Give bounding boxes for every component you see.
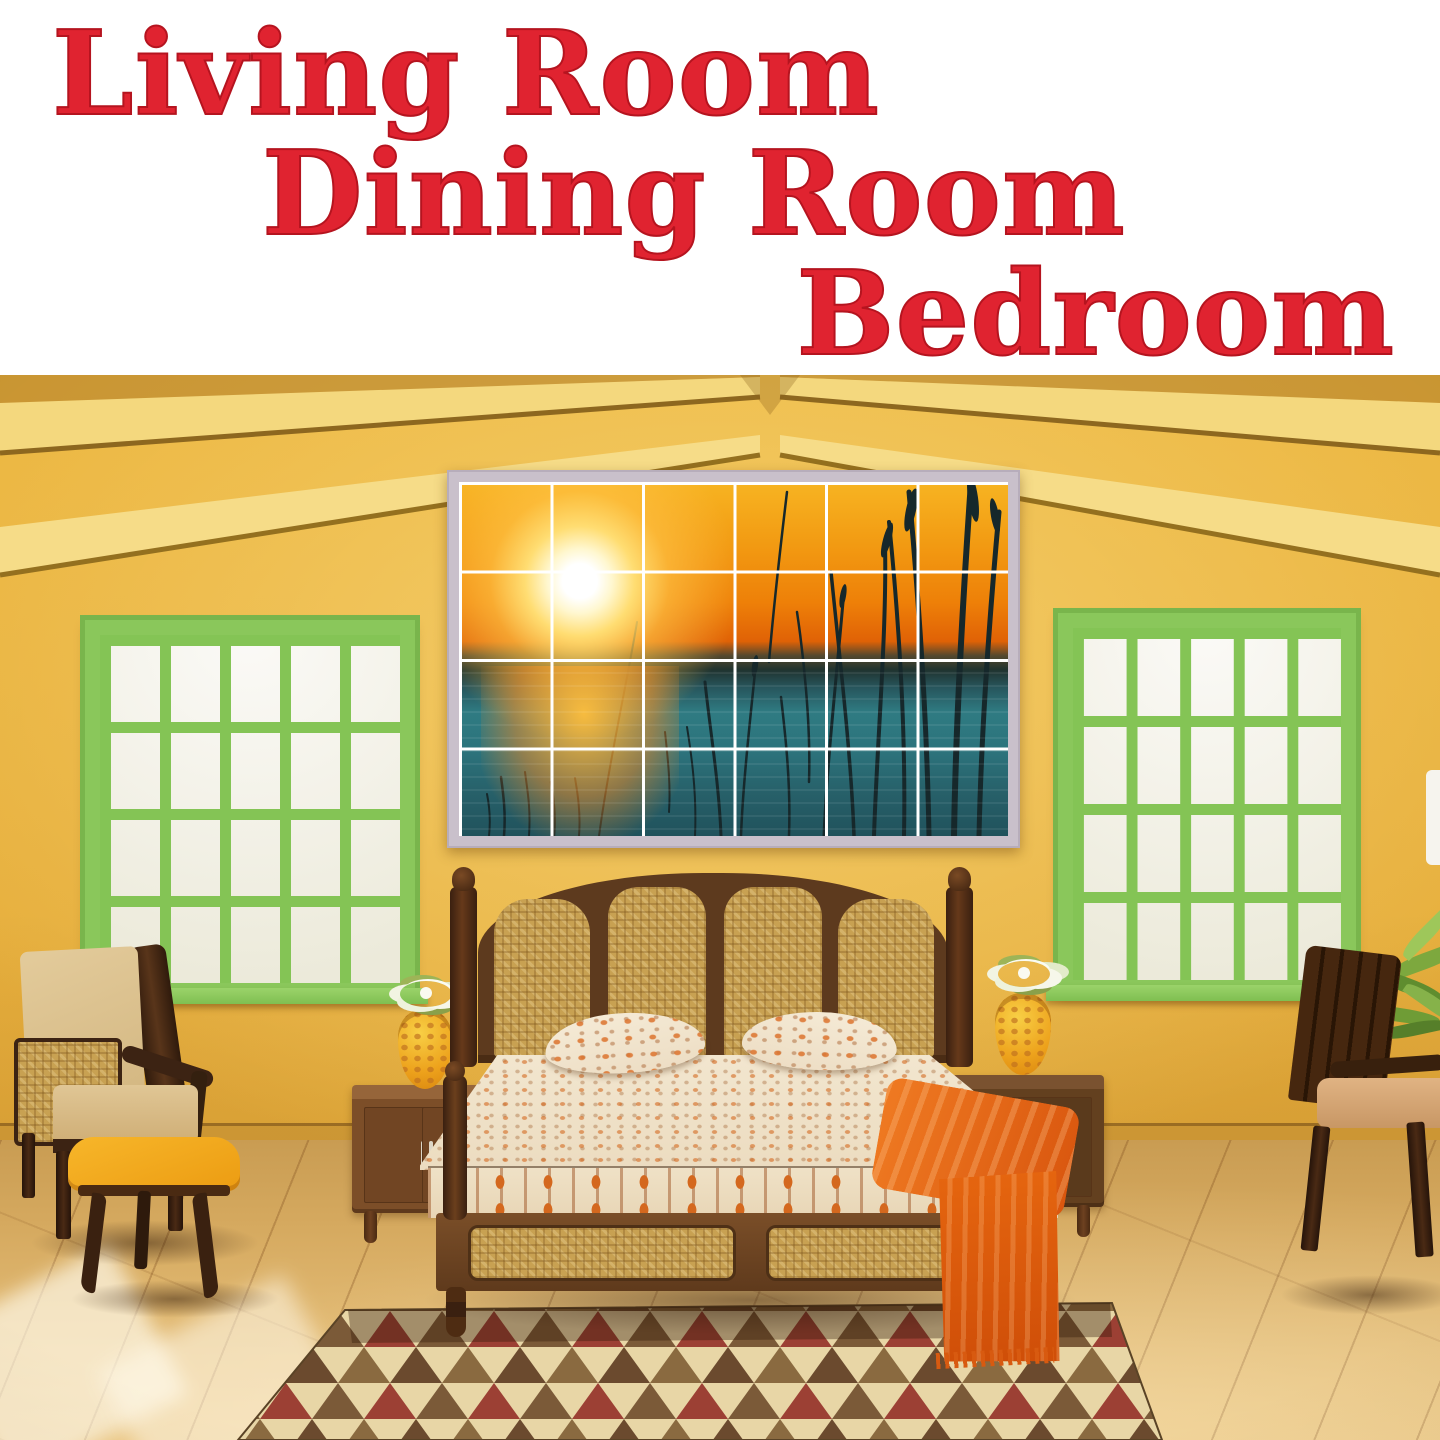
banner-line-dining-room: Dining Room [262, 136, 1126, 252]
headboard-post-left [450, 887, 477, 1067]
footstool-leg [134, 1191, 151, 1270]
armchair-seat-cushion [53, 1085, 198, 1143]
footstool-cushion [68, 1137, 240, 1191]
chair-leg [1406, 1122, 1433, 1258]
left-flowers [420, 987, 432, 999]
throw-blanket-hanging [932, 1171, 1070, 1369]
bed-leg-left [446, 1287, 466, 1337]
footstool-leg [192, 1192, 220, 1298]
headboard-post-right [946, 887, 973, 1067]
right-flowers [1018, 967, 1030, 979]
chair-seat-cushion [1317, 1078, 1440, 1128]
nightstand-leg [364, 1211, 377, 1243]
nightstand-leg [1077, 1205, 1090, 1237]
armchair-leg [22, 1133, 35, 1198]
rail-cane-panel [468, 1225, 736, 1281]
footpost-ball-left [445, 1061, 465, 1081]
footstool [68, 1137, 248, 1302]
chair-leg [1301, 1125, 1331, 1251]
headboard-finial-left [452, 867, 475, 891]
footstool-leg [80, 1192, 107, 1293]
title-banner: Living Room Dining Room Bedroom [0, 0, 1440, 375]
product-image: Living Room Dining Room Bedroom [0, 0, 1440, 1440]
side-chair [1285, 950, 1440, 1310]
banner-line-bedroom: Bedroom [796, 256, 1395, 372]
banner-line-living-room: Living Room [52, 16, 880, 132]
footpost-left [443, 1075, 467, 1220]
bedroom-photo [0, 375, 1440, 1440]
headboard-finial-right [948, 867, 971, 891]
